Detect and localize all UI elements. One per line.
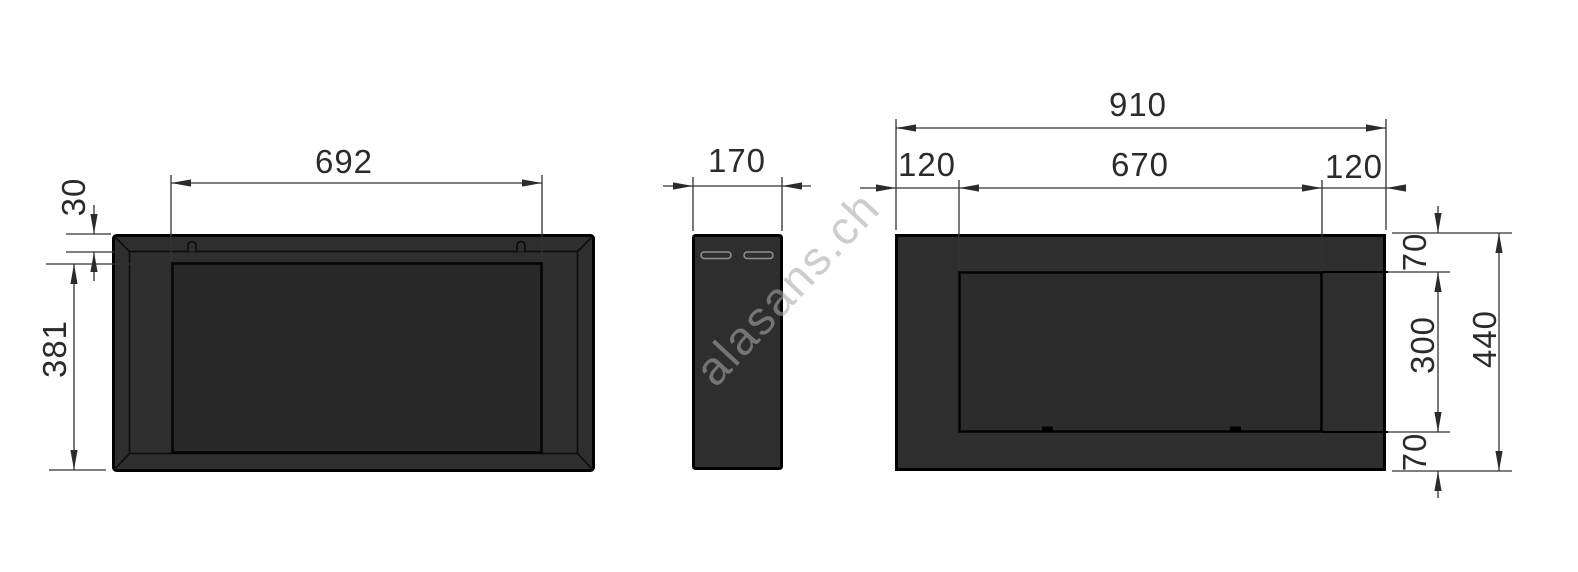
rear-overall-width-label: 910 xyxy=(1109,86,1167,124)
front-glass-panel xyxy=(173,264,542,453)
mount-hook-left xyxy=(188,242,196,252)
arrowhead-down xyxy=(1434,412,1441,432)
front-mount-offset-label: 30 xyxy=(55,178,93,217)
arrowhead-right xyxy=(1302,184,1322,191)
arrowhead-up xyxy=(90,252,97,272)
mount-hook-right xyxy=(517,242,525,252)
rear-overall-height-label: 440 xyxy=(1466,310,1504,368)
arrowhead-right xyxy=(876,184,896,191)
arrowhead-right xyxy=(522,179,542,186)
arrowhead-right xyxy=(1366,124,1386,131)
arrowhead-down xyxy=(1434,213,1441,233)
front-view xyxy=(46,175,594,471)
fireplace-technical-drawing: 692 30 381 170 910 120 670 120 70 300 70… xyxy=(0,0,1578,572)
rear-opening-width-label: 670 xyxy=(1111,146,1169,184)
side-depth-label: 170 xyxy=(708,142,766,180)
front-opening-width-label: 692 xyxy=(315,143,373,181)
arrowhead-up xyxy=(1434,471,1441,491)
arrowhead-left xyxy=(782,182,802,189)
arrowhead-up xyxy=(70,264,77,284)
rear-top-inset-label: 70 xyxy=(1396,233,1434,272)
rear-tab-left xyxy=(1042,427,1053,433)
rear-opening-height-label: 300 xyxy=(1404,316,1442,374)
rear-tab-right xyxy=(1230,427,1241,433)
arrowhead-down xyxy=(90,214,97,234)
arrowhead-left xyxy=(896,124,916,131)
front-height-label: 381 xyxy=(36,320,74,378)
arrowhead-down xyxy=(70,450,77,470)
arrowhead-down xyxy=(1495,451,1502,471)
rear-right-inset-label: 120 xyxy=(1325,148,1383,186)
arrowhead-left xyxy=(1386,184,1406,191)
rear-left-inset-label: 120 xyxy=(898,146,956,184)
rear-bottom-inset-label: 70 xyxy=(1396,433,1434,472)
rear-opening xyxy=(960,273,1322,432)
arrowhead-up xyxy=(1495,233,1502,253)
arrowhead-left xyxy=(959,184,979,191)
arrowhead-right xyxy=(673,182,693,189)
arrowhead-left xyxy=(171,179,191,186)
arrowhead-up xyxy=(1434,272,1441,292)
